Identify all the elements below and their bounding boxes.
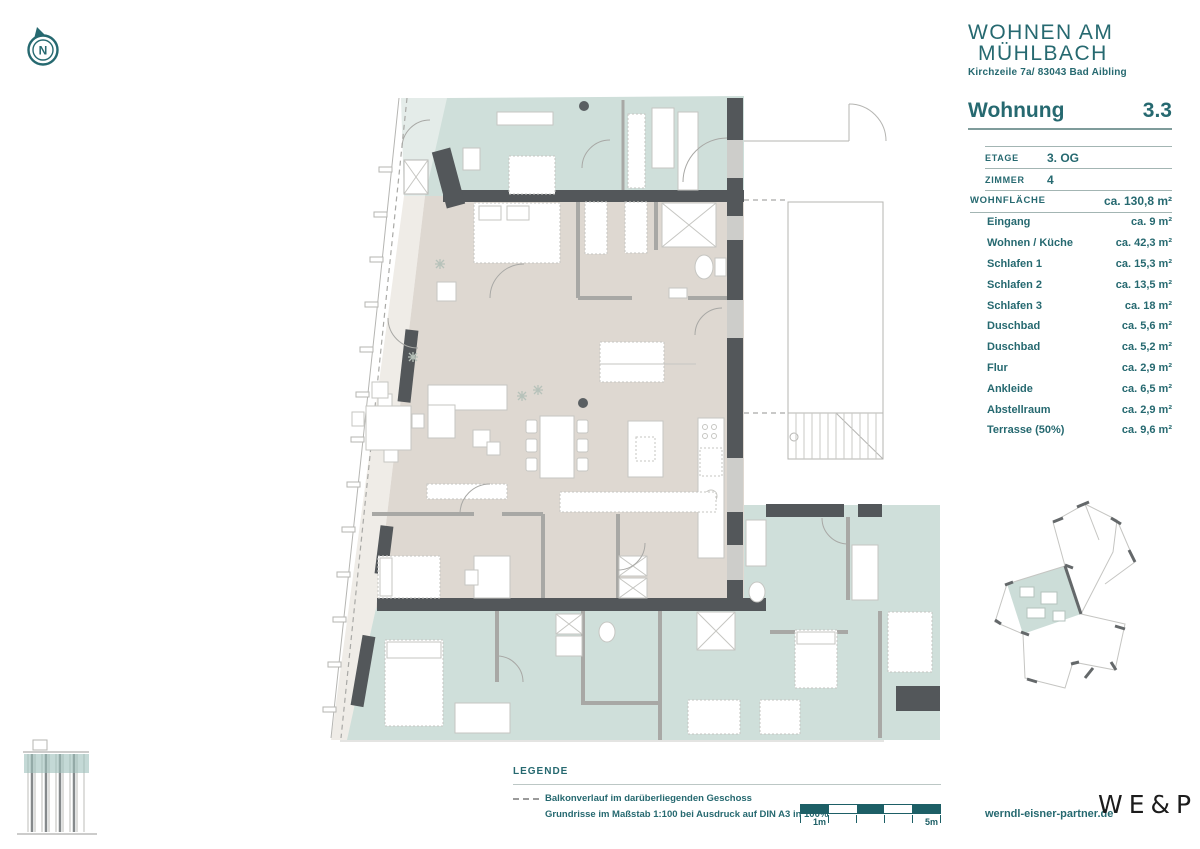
meta-row-etage: ETAGE 3. OG xyxy=(985,147,1172,169)
brand-name-line2: MÜHLBACH xyxy=(978,43,1172,64)
north-compass-icon: N xyxy=(22,26,64,70)
scale-label-1m: 1m xyxy=(802,817,826,827)
header-brand: WOHNEN AM MÜHLBACH Kirchzeile 7a/ 83043 … xyxy=(968,22,1172,78)
balcony-dash-symbol xyxy=(513,798,539,800)
elevation-drawing xyxy=(15,738,100,846)
unit-title: Wohnung xyxy=(968,99,1064,123)
room-row: Terrasse (50%)ca. 9,6 m² xyxy=(970,420,1172,441)
legend-item-balcony: Balkonverlauf im darüberliegenden Gescho… xyxy=(545,793,752,804)
unit-number: 3.3 xyxy=(1143,99,1172,123)
room-row: Schlafen 3ca. 18 m² xyxy=(970,295,1172,316)
website-link: werndl-eisner-partner.de xyxy=(985,808,1113,820)
scale-bar xyxy=(800,804,941,814)
meta-table: ETAGE 3. OG ZIMMER 4 xyxy=(985,146,1172,191)
keyplan-drawing xyxy=(965,492,1150,707)
brand-address: Kirchzeile 7a/ 83043 Bad Aibling xyxy=(968,67,1172,78)
brand-name-line1: WOHNEN AM xyxy=(968,22,1172,43)
wep-logo: WE&P xyxy=(1098,790,1197,819)
legend-title: LEGENDE xyxy=(513,766,568,777)
scale-label-5m: 5m xyxy=(914,817,938,827)
room-row: Wohnen / Kücheca. 42,3 m² xyxy=(970,233,1172,254)
room-row: Abstellraumca. 2,9 m² xyxy=(970,399,1172,420)
legend-item-scale: Grundrisse im Maßstab 1:100 bei Ausdruck… xyxy=(545,809,828,820)
legend-rule xyxy=(513,784,941,785)
floorplan-drawing xyxy=(320,88,950,748)
area-total-row: WOHNFLÄCHE ca. 130,8 m² xyxy=(970,189,1172,213)
room-row: Schlafen 2ca. 13,5 m² xyxy=(970,274,1172,295)
room-row: Eingangca. 9 m² xyxy=(970,212,1172,233)
meta-row-zimmer: ZIMMER 4 xyxy=(985,169,1172,191)
unit-title-row: Wohnung 3.3 xyxy=(968,99,1172,130)
room-row: Ankleideca. 6,5 m² xyxy=(970,378,1172,399)
room-list: Eingangca. 9 m² Wohnen / Kücheca. 42,3 m… xyxy=(970,212,1172,441)
room-row: Duschbadca. 5,6 m² xyxy=(970,316,1172,337)
room-row: Schlafen 1ca. 15,3 m² xyxy=(970,254,1172,275)
room-row: Flurca. 2,9 m² xyxy=(970,358,1172,379)
svg-text:N: N xyxy=(39,44,48,58)
room-row: Duschbadca. 5,2 m² xyxy=(970,337,1172,358)
